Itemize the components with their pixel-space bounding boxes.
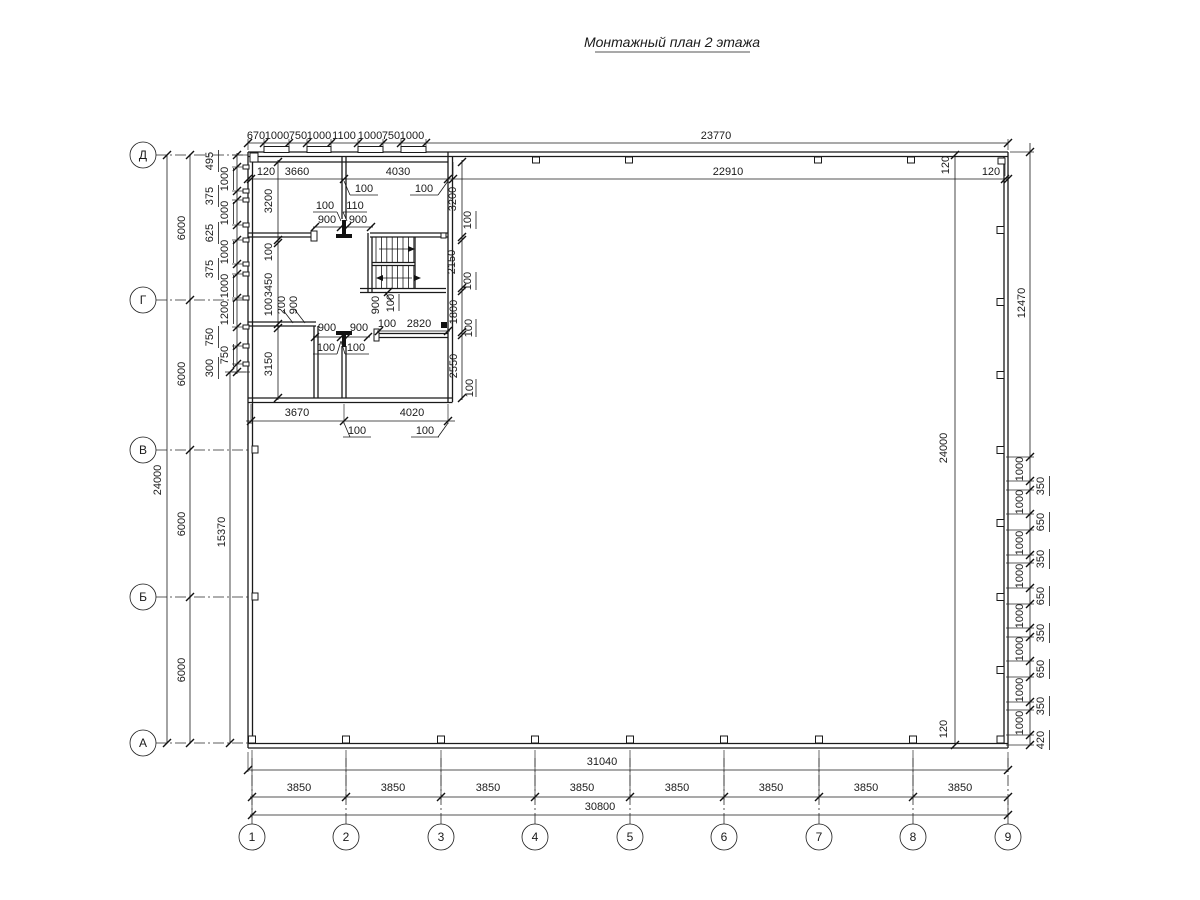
dim-label: 2150	[446, 250, 458, 274]
dim-label: 100	[355, 183, 373, 195]
dim-label: 900	[350, 322, 368, 334]
dim-label: 3850	[948, 782, 972, 794]
drawing-title: Монтажный план 2 этажа	[584, 34, 760, 52]
dim-label: 120	[982, 166, 1000, 178]
dim-label: 1800	[448, 300, 460, 324]
dim-label: 1000	[219, 201, 231, 225]
dim-label: 1000	[219, 167, 231, 191]
dim-label: 22910	[713, 166, 744, 178]
axis-bubbles-bottom: 1 2 3 4 5 6 7 8 9	[239, 824, 1021, 850]
dim-label: 900	[318, 322, 336, 334]
dim-label: 1000	[219, 274, 231, 298]
dim-label: 120	[938, 720, 950, 738]
dim-label: 3850	[381, 782, 405, 794]
axis-label-g: Г	[140, 293, 147, 307]
dim-label: 750	[204, 328, 216, 346]
dim-label: 900	[318, 214, 336, 226]
dim-label: 4020	[400, 407, 424, 419]
dim-label: 420	[1035, 731, 1047, 749]
dim-label: 375	[204, 260, 216, 278]
dim-label: 650	[1035, 513, 1047, 531]
dim-label: 15370	[216, 517, 228, 548]
dim-label: 750	[289, 130, 307, 142]
dim-label: 23770	[701, 130, 732, 142]
dim-label: 495	[204, 152, 216, 170]
dim-label: 31040	[587, 756, 618, 768]
dim-label: 3850	[854, 782, 878, 794]
axis-label-1: 1	[249, 830, 256, 844]
floor-plan-canvas: Монтажный план 2 этажа Д Г В Б А 1 2 3 4…	[0, 0, 1200, 900]
dim-label: 3850	[570, 782, 594, 794]
dim-label: 750	[219, 346, 231, 364]
dim-label: 1200	[219, 301, 231, 325]
dim-label: 6000	[176, 658, 188, 682]
dim-label: 4030	[386, 166, 410, 178]
dim-label: 6000	[176, 216, 188, 240]
dim-label: 100	[316, 200, 334, 212]
dim-label: 1000	[400, 130, 424, 142]
dim-label: 900	[349, 214, 367, 226]
dim-label: 120	[940, 156, 952, 174]
dim-label: 1000	[1014, 490, 1026, 514]
drawing-sheet: Монтажный план 2 этажа Д Г В Б А 1 2 3 4…	[0, 0, 1200, 900]
dim-label: 100	[415, 183, 433, 195]
axis-label-9: 9	[1005, 830, 1012, 844]
axis-label-b: Б	[139, 590, 147, 604]
dim-label: 100	[464, 379, 476, 397]
dim-label: 3850	[287, 782, 311, 794]
dim-label: 100	[263, 243, 275, 261]
dim-label: 350	[1035, 624, 1047, 642]
dim-label: 3850	[665, 782, 689, 794]
dim-label: 1100	[332, 130, 356, 142]
axis-label-2: 2	[343, 830, 350, 844]
dim-label: 900	[370, 296, 382, 314]
axis-label-d: Д	[139, 148, 147, 162]
dim-label: 1000	[1014, 604, 1026, 628]
dim-label: 350	[1035, 550, 1047, 568]
axis-label-6: 6	[721, 830, 728, 844]
dimension-ticks	[163, 139, 1034, 819]
dim-label: 670	[247, 130, 265, 142]
dim-label: 3670	[285, 407, 309, 419]
dim-label: 100	[463, 319, 475, 337]
axis-label-5: 5	[627, 830, 634, 844]
dim-label: 30800	[585, 801, 616, 813]
dim-label: 1000	[265, 130, 289, 142]
dim-label: 3150	[263, 352, 275, 376]
dim-label: 625	[204, 224, 216, 242]
dim-label: 900	[288, 296, 300, 314]
dim-label: 24000	[152, 465, 164, 496]
dim-label: 110	[346, 200, 364, 212]
dim-label: 24000	[938, 433, 950, 464]
dim-label: 1000	[358, 130, 382, 142]
dim-label: 200	[276, 296, 288, 314]
dim-label: 650	[1035, 587, 1047, 605]
dim-label: 12470	[1016, 288, 1028, 319]
dim-label: 3200	[263, 189, 275, 213]
dim-label: 1000	[219, 240, 231, 264]
dim-label: 3850	[759, 782, 783, 794]
dim-label: 100	[347, 342, 365, 354]
dim-label: 1000	[1014, 711, 1026, 735]
dim-label: 375	[204, 187, 216, 205]
dim-label: 650	[1035, 660, 1047, 678]
dim-label: 100	[348, 425, 366, 437]
column-marks	[243, 147, 1005, 744]
dim-label: 100	[416, 425, 434, 437]
dim-label: 100	[378, 318, 396, 330]
dim-label: 100	[317, 342, 335, 354]
dim-label: 100	[263, 298, 275, 316]
dim-label: 2820	[407, 318, 431, 330]
dim-label: 100	[462, 211, 474, 229]
dim-label: 120	[257, 166, 275, 178]
dim-label: 300	[204, 359, 216, 377]
dim-label: 3200	[447, 187, 459, 211]
dim-label: 1000	[1014, 457, 1026, 481]
dim-label: 1000	[307, 130, 331, 142]
dim-label: 3450	[263, 273, 275, 297]
dim-label: 1000	[1014, 564, 1026, 588]
dim-label: 1000	[1014, 678, 1026, 702]
dim-label: 350	[1035, 477, 1047, 495]
dim-label: 1000	[1014, 531, 1026, 555]
dim-label: 2550	[448, 354, 460, 378]
axis-label-a: А	[139, 736, 147, 750]
dimension-lines	[167, 143, 1050, 815]
building-walls	[248, 152, 1008, 748]
dim-label: 6000	[176, 362, 188, 386]
dim-label: 6000	[176, 512, 188, 536]
dim-label: 1000	[1014, 637, 1026, 661]
dim-label: 350	[1035, 697, 1047, 715]
dim-label: 3850	[476, 782, 500, 794]
dim-label: 750	[382, 130, 400, 142]
axis-label-7: 7	[816, 830, 823, 844]
axis-label-8: 8	[910, 830, 917, 844]
axis-label-v: В	[139, 443, 147, 457]
extension-lines	[225, 139, 1034, 818]
axis-label-4: 4	[532, 830, 539, 844]
axis-label-3: 3	[438, 830, 445, 844]
dim-label: 100	[462, 272, 474, 290]
dim-label: 100	[385, 294, 397, 312]
page-title: Монтажный план 2 этажа	[584, 34, 760, 50]
axis-centerlines	[156, 155, 1008, 824]
staircase	[372, 237, 421, 289]
axis-bubbles-left: Д Г В Б А	[130, 142, 156, 756]
dim-label: 3660	[285, 166, 309, 178]
